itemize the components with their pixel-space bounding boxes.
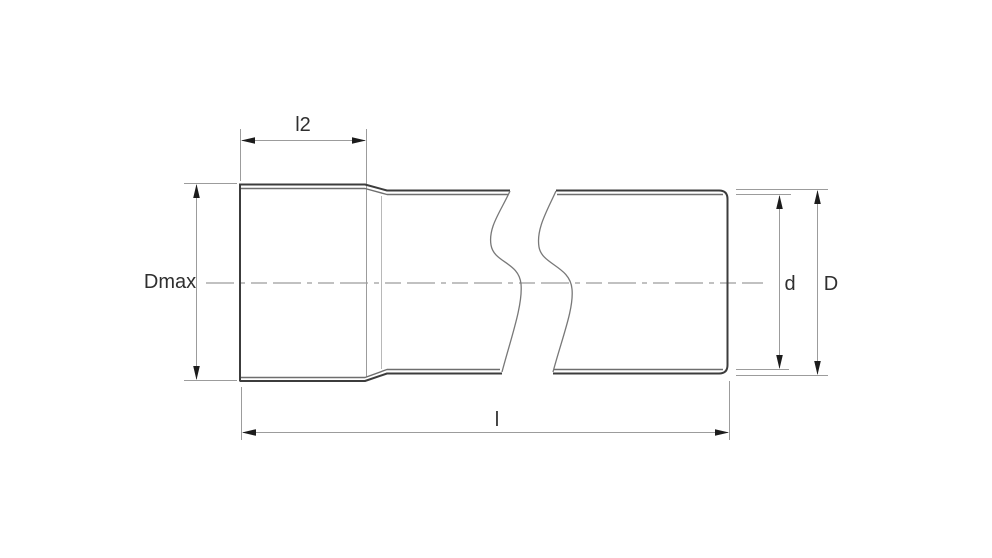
l2-arrow-right-icon: [352, 137, 366, 144]
technical-drawing-canvas: l2 Dmax d D: [0, 0, 992, 558]
dmax-arrow-down-icon: [193, 366, 200, 380]
top-outer-wall-left: [240, 185, 510, 191]
dimension-l: l: [242, 381, 730, 440]
l2-label: l2: [295, 114, 311, 136]
d-arrow-down-icon: [776, 355, 783, 369]
d-arrow-up-icon: [776, 195, 783, 209]
D-arrow-up-icon: [814, 190, 821, 204]
break-curve-right: [538, 191, 572, 372]
l-arrow-left-icon: [242, 429, 256, 436]
D-arrow-down-icon: [814, 361, 821, 375]
break-curve-left: [491, 191, 522, 372]
dimension-d: d: [736, 195, 796, 370]
D-label: D: [824, 273, 838, 295]
right-section-outer-wall: [553, 191, 728, 374]
break-lines: [491, 191, 573, 372]
d-label: d: [784, 273, 795, 295]
l-arrow-right-icon: [715, 429, 729, 436]
l-label: l: [495, 409, 499, 431]
l2-arrow-left-icon: [241, 137, 255, 144]
dmax-arrow-up-icon: [193, 184, 200, 198]
dimension-l2: l2: [241, 114, 367, 377]
dimension-dmax: Dmax: [144, 184, 237, 381]
pipe-dimension-diagram: l2 Dmax d D: [0, 0, 992, 558]
dmax-label: Dmax: [144, 271, 196, 293]
